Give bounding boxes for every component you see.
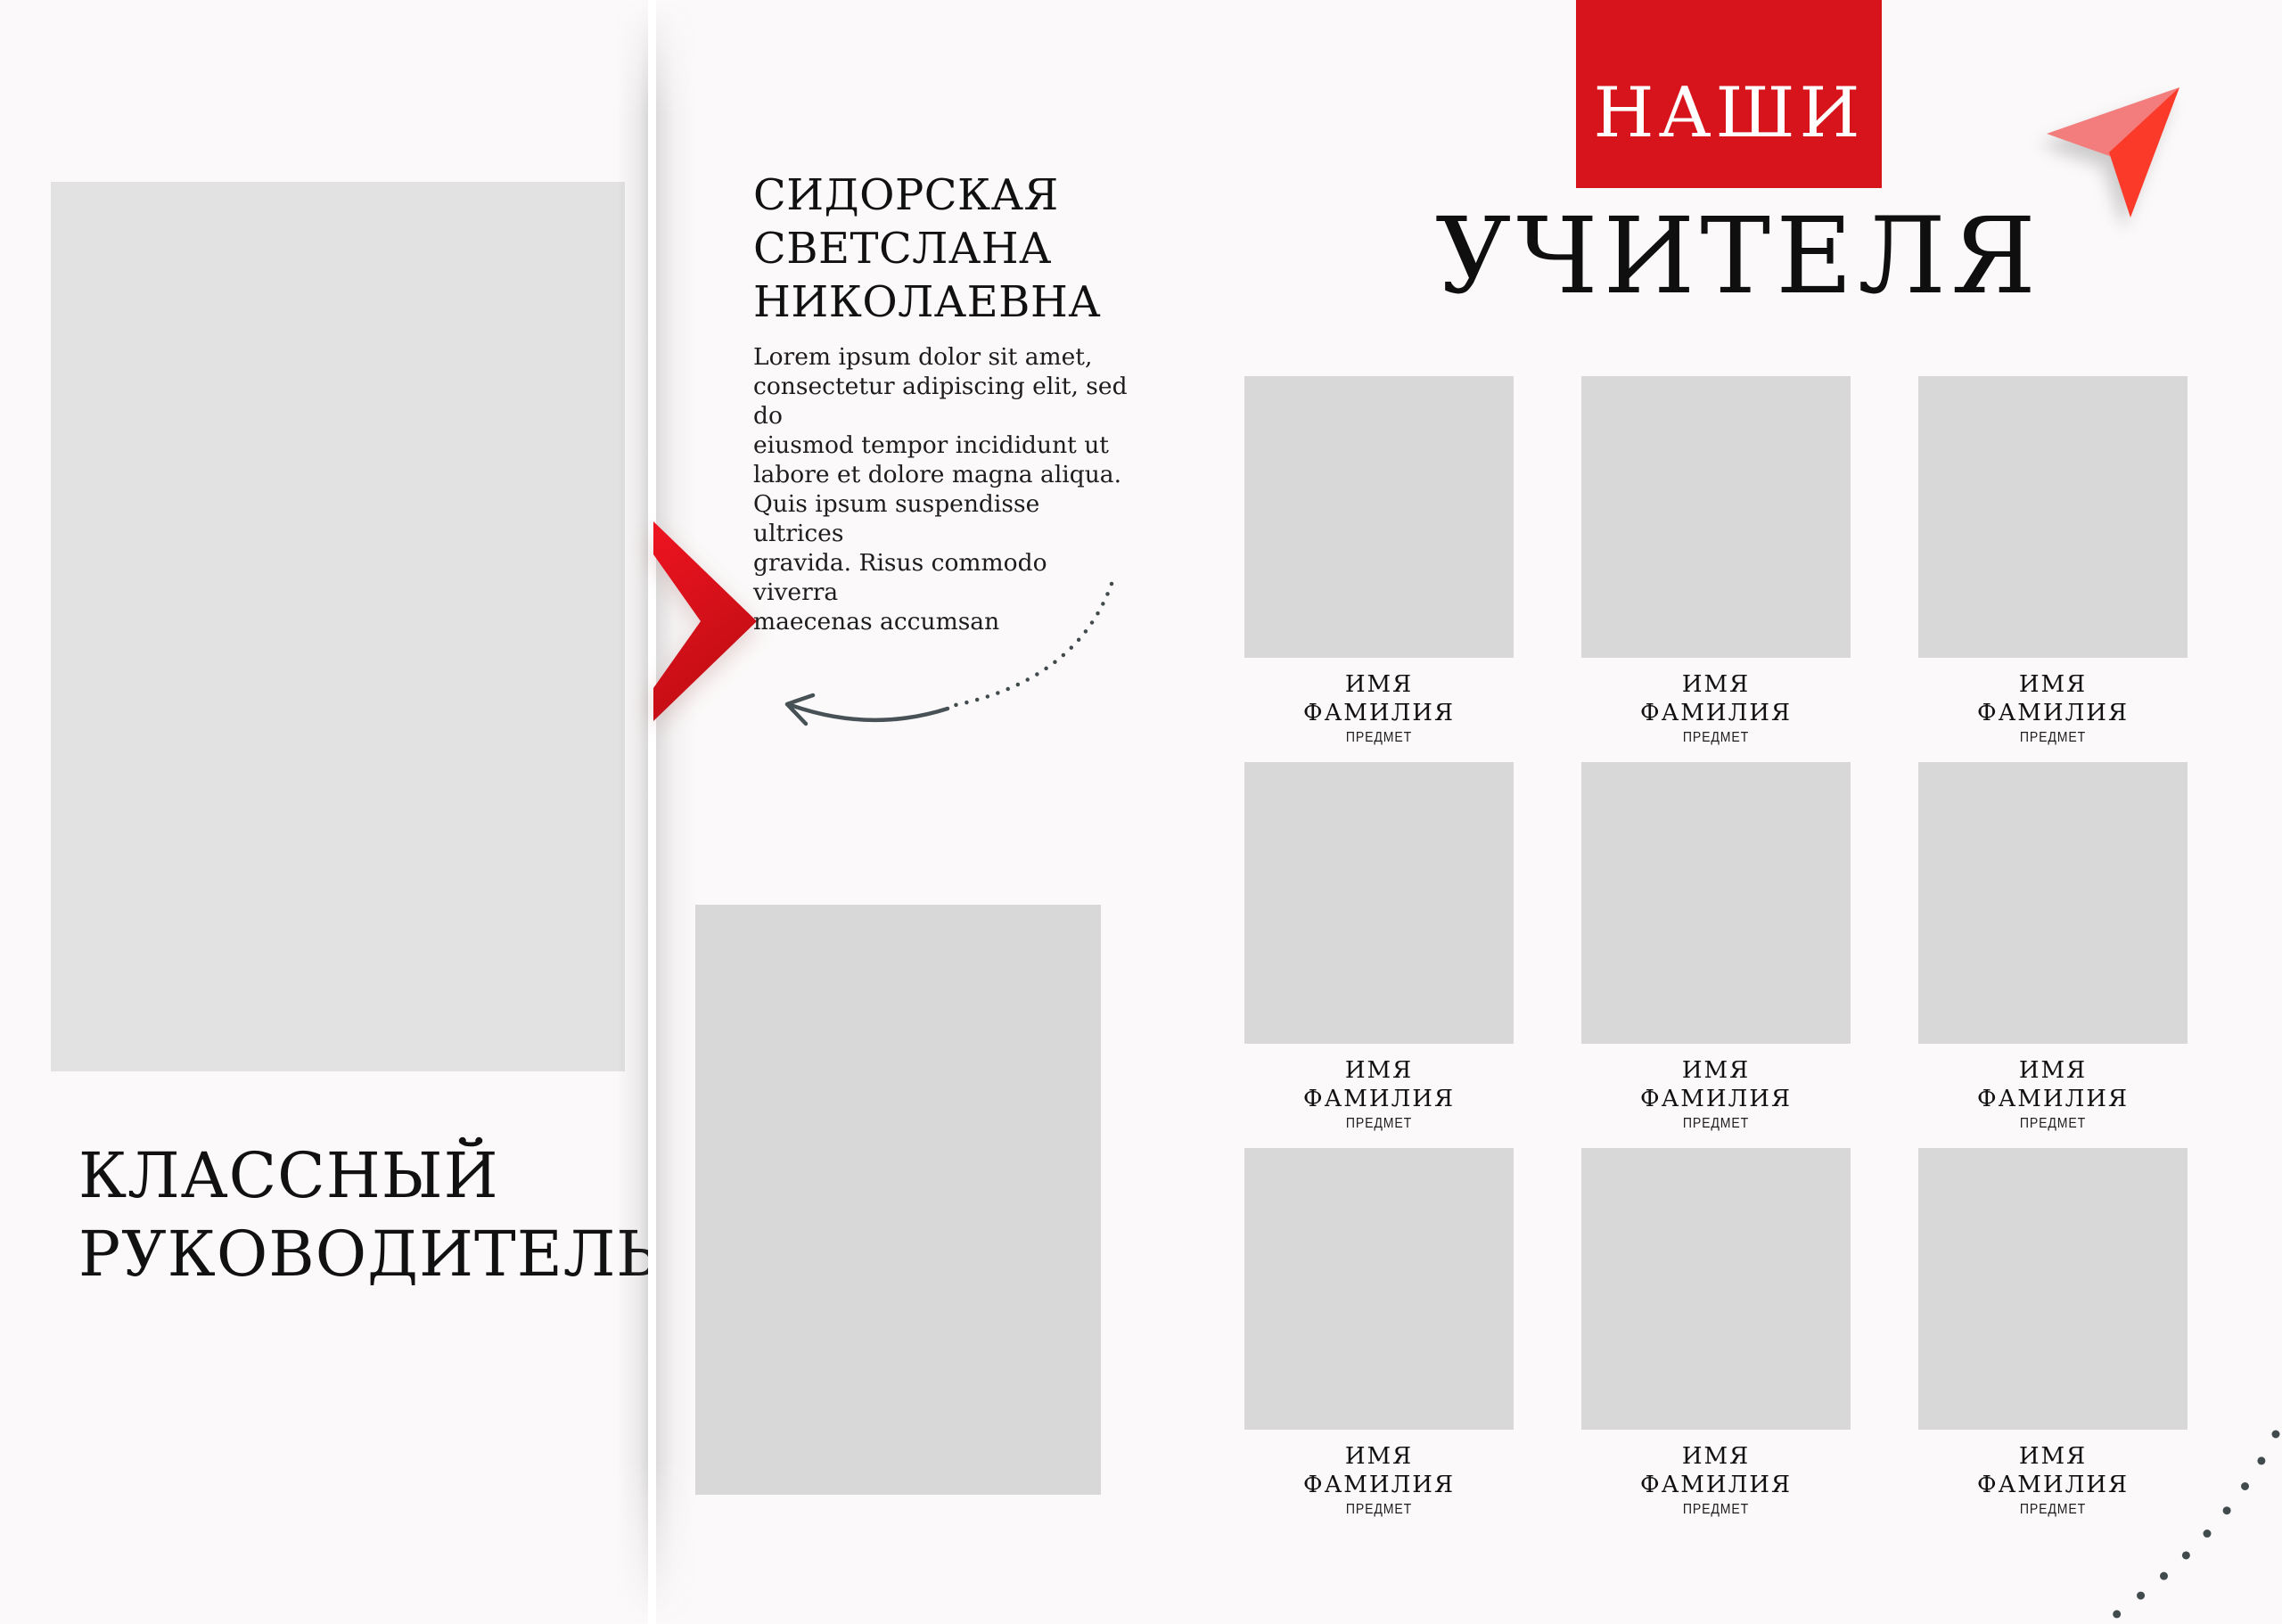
teacher-card: ИМЯ ФАМИЛИЯ ПРЕДМЕТ (1244, 1148, 1514, 1521)
teacher-subject: ПРЕДМЕТ (1934, 1113, 2171, 1135)
page-fold-shadow-right (656, 0, 697, 1624)
section-title-class-teacher: КЛАССНЫЙ РУКОВОДИТЕЛЬ (78, 1136, 702, 1293)
teacher-name: ИМЯ ФАМИЛИЯ (1918, 1056, 2188, 1113)
header-badge-label: НАШИ (1576, 78, 1882, 148)
teacher-card: ИМЯ ФАМИЛИЯ ПРЕДМЕТ (1581, 762, 1851, 1135)
teacher-photo-placeholder (1918, 376, 2188, 658)
teacher-photo-placeholder (1581, 376, 1851, 658)
teacher-subject: ПРЕДМЕТ (1260, 1499, 1498, 1521)
class-teacher-photo-placeholder (51, 182, 625, 1071)
teacher-photo-placeholder (1918, 1148, 2188, 1430)
teacher-photo-placeholder (1244, 376, 1514, 658)
header-badge: НАШИ (1576, 0, 1882, 188)
teacher-subject: ПРЕДМЕТ (1934, 727, 2171, 749)
paper-plane-icon (2032, 71, 2220, 241)
teacher-card: ИМЯ ФАМИЛИЯ ПРЕДМЕТ (1581, 376, 1851, 749)
dotted-trail-icon (2086, 1417, 2282, 1624)
teacher-name: ИМЯ ФАМИЛИЯ (1244, 1442, 1514, 1499)
teacher-photo-placeholder (1581, 1148, 1851, 1430)
teacher-subject: ПРЕДМЕТ (1260, 1113, 1498, 1135)
teacher-photo-placeholder (1918, 762, 2188, 1044)
teacher-photo-placeholder (1244, 762, 1514, 1044)
page-fold-edge (648, 0, 656, 1624)
teacher-card: ИМЯ ФАМИЛИЯ ПРЕДМЕТ (1244, 762, 1514, 1135)
teacher-card: ИМЯ ФАМИЛИЯ ПРЕДМЕТ (1581, 1148, 1851, 1521)
teacher-card: ИМЯ ФАМИЛИЯ ПРЕДМЕТ (1244, 376, 1514, 749)
teacher-name: ИМЯ ФАМИЛИЯ (1581, 670, 1851, 727)
class-teacher-secondary-photo-placeholder (695, 905, 1101, 1495)
page-title-teachers: УЧИТЕЛЯ (1435, 203, 2023, 308)
teacher-subject: ПРЕДМЕТ (1260, 727, 1498, 749)
yearbook-spread: КЛАССНЫЙ РУКОВОДИТЕЛЬ СИДОРСКАЯ СВЕТСЛАН… (0, 0, 2282, 1624)
teacher-name: ИМЯ ФАМИЛИЯ (1581, 1442, 1851, 1499)
teacher-name: ИМЯ ФАМИЛИЯ (1581, 1056, 1851, 1113)
teacher-subject: ПРЕДМЕТ (1597, 1113, 1835, 1135)
teacher-card: ИМЯ ФАМИЛИЯ ПРЕДМЕТ (1918, 376, 2188, 749)
teacher-name: ИМЯ ФАМИЛИЯ (1244, 670, 1514, 727)
teacher-card: ИМЯ ФАМИЛИЯ ПРЕДМЕТ (1918, 762, 2188, 1135)
curved-arrow-icon (767, 562, 1141, 749)
teacher-photo-grid: ИМЯ ФАМИЛИЯ ПРЕДМЕТ ИМЯ ФАМИЛИЯ ПРЕДМЕТ … (1244, 376, 2188, 1521)
teacher-name: ИМЯ ФАМИЛИЯ (1244, 1056, 1514, 1113)
page-fold-shadow-left (616, 0, 648, 1624)
teacher-name: ИМЯ ФАМИЛИЯ (1918, 670, 2188, 727)
class-teacher-name: СИДОРСКАЯ СВЕТСЛАНА НИКОЛАЕВНА (753, 168, 1128, 329)
teacher-subject: ПРЕДМЕТ (1597, 727, 1835, 749)
teacher-photo-placeholder (1244, 1148, 1514, 1430)
teacher-subject: ПРЕДМЕТ (1597, 1499, 1835, 1521)
teacher-photo-placeholder (1581, 762, 1851, 1044)
